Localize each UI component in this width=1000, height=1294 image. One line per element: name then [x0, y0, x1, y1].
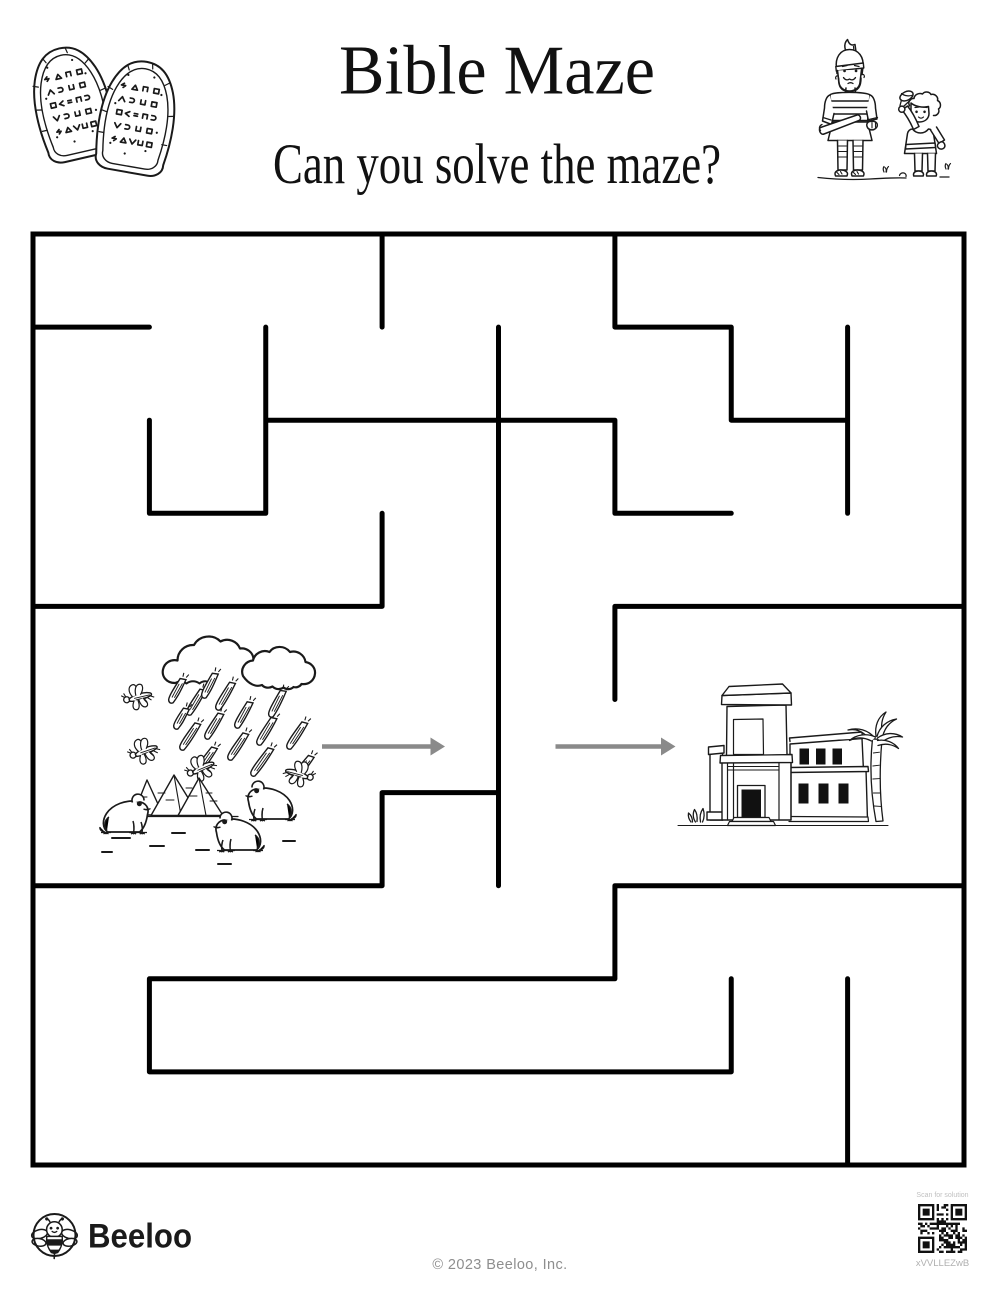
svg-text:xVVLLEZwB: xVVLLEZwB [916, 1258, 969, 1269]
svg-text:Scan for solution: Scan for solution [916, 1192, 968, 1199]
svg-text:Can you solve the maze?: Can you solve the maze? [273, 133, 721, 196]
svg-text:© 2023 Beeloo, Inc.: © 2023 Beeloo, Inc. [432, 1257, 567, 1273]
svg-text:Bible Maze: Bible Maze [339, 33, 655, 110]
svg-text:Beeloo: Beeloo [88, 1218, 192, 1256]
